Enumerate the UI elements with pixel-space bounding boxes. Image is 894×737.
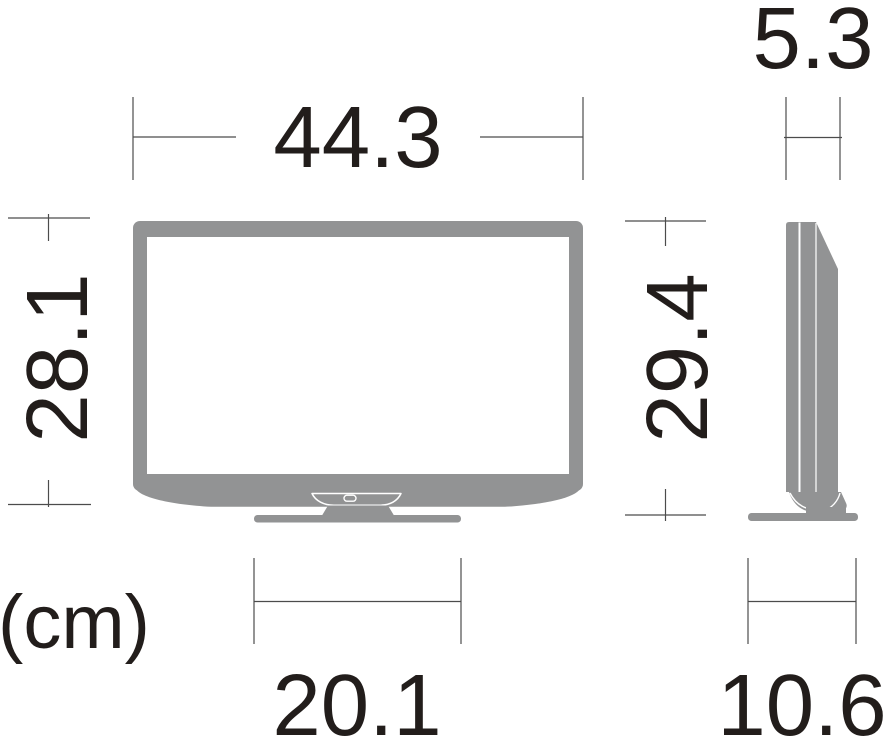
unit-label: (cm) [0,580,150,665]
dim-front-height: 28.1 [8,214,106,507]
dim-stand-width-label: 20.1 [272,657,441,737]
tv-front-stand-base [254,515,461,523]
tv-side-stand-base [748,513,858,521]
dim-side-depth-label: 5.3 [753,0,874,87]
dim-stand-depth-label: 10.6 [717,657,886,737]
tv-side-body [786,222,838,492]
tv-front-view [133,221,583,523]
tv-side-stand-pad [806,507,846,513]
diagram-canvas: 44.3 5.3 28.1 29.4 20.1 10.6 (cm) [0,0,894,737]
tv-side-view [748,222,858,521]
tv-front-screen [147,237,569,474]
dim-front-width-label: 44.3 [273,89,442,186]
dim-side-depth: 5.3 [753,0,874,180]
tv-front-stand-neck [322,506,394,516]
dim-stand-width: 20.1 [254,558,461,737]
dim-front-height-label: 28.1 [9,273,106,442]
dim-total-height-label: 29.4 [629,273,726,442]
dim-total-height: 29.4 [625,217,726,521]
dim-stand-depth: 10.6 [717,558,886,737]
dim-front-width: 44.3 [133,89,583,186]
tv-dimension-diagram: 44.3 5.3 28.1 29.4 20.1 10.6 (cm) [0,0,894,737]
